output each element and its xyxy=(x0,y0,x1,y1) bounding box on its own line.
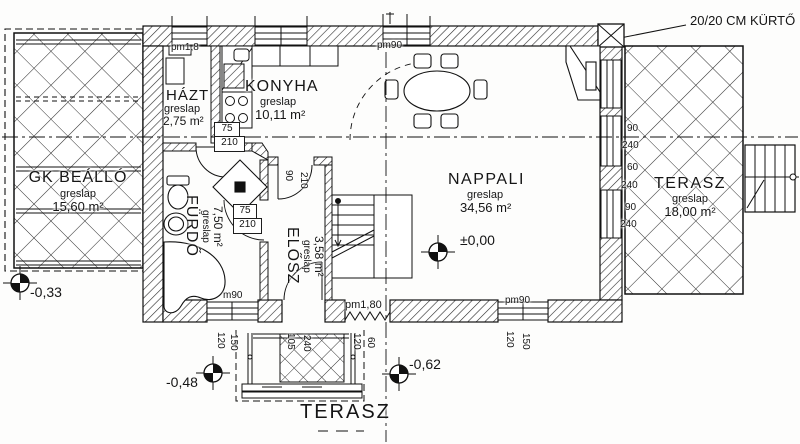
exterior-stairs xyxy=(745,145,795,212)
dim-porch-4: 60 xyxy=(365,337,375,348)
carport-structure xyxy=(5,29,143,271)
room-area-hall: 3,58 m² xyxy=(312,210,326,302)
sink-drainer xyxy=(224,64,244,88)
dining-table xyxy=(385,54,487,128)
dim-east-wall-1: 90 xyxy=(627,124,638,135)
dim-east-wall-3: 60 xyxy=(627,163,638,174)
dim-porch-3: 120 xyxy=(351,333,361,350)
dim-living-south-width: 120 xyxy=(504,331,514,348)
floor-plan-drawing xyxy=(0,0,800,444)
room-name-terrace-east: TERASZ xyxy=(645,176,735,193)
entry-grate xyxy=(345,312,390,320)
chimney xyxy=(598,24,624,47)
dim-hazt-door-height: 210 xyxy=(214,136,245,152)
level-label-southwest: -0,48 xyxy=(166,375,198,390)
dim-bath-window-width: 120 xyxy=(215,332,225,349)
room-name-household: HÁZT xyxy=(166,88,209,104)
dim-hall-door-width: 90 xyxy=(283,170,293,181)
room-name-hall: ELŐSZ xyxy=(283,210,301,302)
room-area-living: 34,56 m² xyxy=(460,201,511,215)
opening-label-entry: pm1,80 xyxy=(345,300,382,312)
terrace-east-structure xyxy=(610,25,799,294)
room-finish-bathroom: greslap xyxy=(200,176,211,276)
dim-east-wall-6: 240 xyxy=(620,220,637,231)
interior-stairs xyxy=(332,195,412,278)
dim-hazt-door-width: 75 xyxy=(214,122,240,137)
floor-plan: 20/20 CM KÜRTŐ GK BEÁLLÓ greslap 15,60 m… xyxy=(0,0,800,444)
chimney-note: 20/20 CM KÜRTŐ xyxy=(690,14,795,28)
dim-living-south-height: 150 xyxy=(520,333,530,350)
room-name-living: NAPPALI xyxy=(448,172,525,189)
room-name-carport: GK BEÁLLÓ xyxy=(20,170,136,187)
room-area-carport: 15,60 m² xyxy=(20,200,136,214)
dim-east-wall-2: 240 xyxy=(622,141,639,152)
dim-east-wall-4: 240 xyxy=(621,181,638,192)
level-label-south: -0,62 xyxy=(409,357,441,372)
room-name-bathroom: FÜRDŐ xyxy=(182,176,200,276)
dim-bath-door-height: 210 xyxy=(233,218,262,234)
room-name-kitchen: KONYHA xyxy=(245,79,319,96)
dim-porch-2: 240 xyxy=(301,335,311,352)
dim-porch-1: 105 xyxy=(285,333,295,350)
dim-east-wall-5: 90 xyxy=(625,203,636,214)
room-label-hall: ELŐSZ greslap 3,58 m² xyxy=(283,210,326,302)
level-label-carport: -0,33 xyxy=(30,285,62,300)
sink-bowl xyxy=(234,49,249,61)
room-finish-hall: greslap xyxy=(301,210,312,302)
room-label-bathroom: FÜRDŐ greslap 7,50 m² xyxy=(182,176,225,276)
opening-label-living-south: pm90 xyxy=(505,296,530,307)
room-area-terrace-east: 18,00 m² xyxy=(645,205,735,219)
room-area-household: 2,75 m² xyxy=(163,115,204,128)
opening-label-hazt-window: pm1,8 xyxy=(171,43,199,54)
opening-label-living-north: pm90 xyxy=(377,41,402,52)
fireplace xyxy=(566,46,600,100)
dim-bath-window-height: 150 xyxy=(228,334,238,351)
dim-hall-door-height: 210 xyxy=(298,172,308,189)
room-name-terrace-south: TERASZ xyxy=(300,402,391,423)
elevation-marker-main xyxy=(421,235,455,269)
room-area-bathroom: 7,50 m² xyxy=(211,176,225,276)
east-windows xyxy=(601,60,621,238)
room-area-kitchen: 10,11 m² xyxy=(255,108,305,122)
dim-bath-door-width: 75 xyxy=(233,204,257,219)
level-label-main: ±0,00 xyxy=(460,233,495,248)
elevation-marker-southwest xyxy=(196,356,230,390)
opening-label-bath-window: m90 xyxy=(223,291,242,302)
